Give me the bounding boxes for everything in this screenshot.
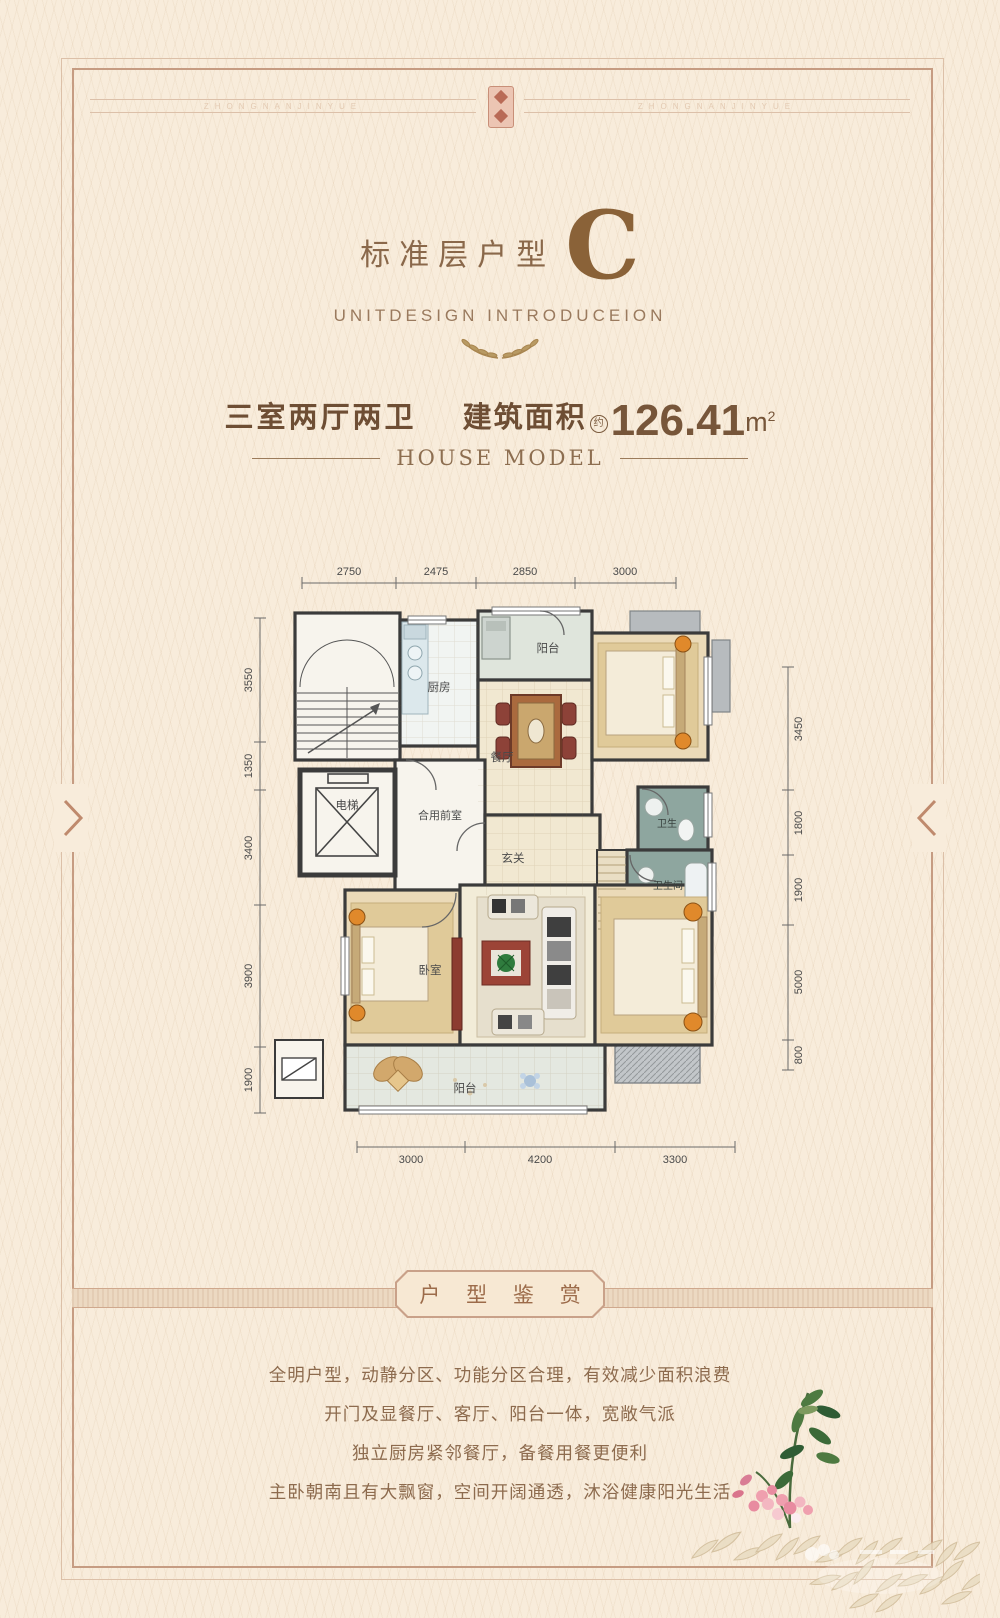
room-label-kitchen: 厨房 [428,681,451,694]
banner-plaque: 户 型 鉴 赏 [395,1270,605,1318]
approx-circle-icon: 约 [590,415,608,433]
room-label-dining: 餐厅 [491,750,514,764]
dim-left-1: 3550 [243,668,255,692]
dim-bottom-3: 3300 [663,1154,687,1166]
banner-title: 户 型 鉴 赏 [409,1279,591,1309]
dim-left-2: 1350 [243,754,255,778]
room-label-balcony-top: 阳台 [537,641,560,655]
dim-left-5: 1900 [243,1068,255,1092]
chevron-left-icon [914,797,942,839]
dim-bottom-2: 4200 [528,1154,552,1166]
specs-row: 三室两厅两卫 建筑面积 约 126.41 m2 [0,394,1000,441]
room-label-foyer: 玄关 [502,851,525,865]
medallion-icon [488,86,514,128]
page-title: 标准层户型 [360,230,555,288]
dim-right-5: 800 [793,1046,805,1064]
room-label-lobby: 合用前室 [418,808,462,822]
floor-plan: 厨房 阳台 餐厅 电梯 合用前室 玄关 卫生 卫生间 卧室 阳台 [230,545,810,1173]
blossoms [731,1472,813,1523]
unit-type-letter: C [565,204,640,288]
dim-left-4: 3900 [243,964,255,988]
poster: { "poster": { "band_text_left": "ZHONGNA… [0,0,1000,1618]
dim-right-3: 1900 [793,878,805,902]
room-label-elevator: 电梯 [336,799,359,812]
dim-right-1: 3450 [793,717,805,741]
laurel-icon [450,334,550,362]
band-text-right: ZHONGNANJINYUE [524,102,910,111]
dim-top-4: 3000 [613,566,637,578]
dim-left-3: 3400 [243,836,255,860]
room-label-bath-top: 卫生 [657,817,677,830]
tagline: HOUSE MODEL [396,446,603,470]
area-unit: m2 [745,407,775,441]
dim-top-1: 2750 [337,566,361,578]
area-group: 建筑面积 约 126.41 m2 [463,394,776,441]
flower-decoration [690,1368,980,1618]
dim-top-3: 2850 [513,566,537,578]
room-label-balcony-bottom: 阳台 [454,1081,477,1095]
band-text-left: ZHONGNANJINYUE [90,102,476,111]
flower-branch [731,1386,842,1528]
chevron-right-icon [58,797,86,839]
tagline-row: HOUSE MODEL [0,446,1000,470]
dim-right-2: 1800 [793,811,805,835]
area-label: 建筑面积 [463,394,587,441]
room-label-bath-bottom: 卫生间 [653,879,683,892]
dim-bottom-1: 3000 [399,1154,423,1166]
tagline-line-left [252,458,380,459]
room-label-bedroom: 卧室 [419,963,442,977]
header: 标准层户型 C [0,204,1000,288]
tagline-line-right [620,458,748,459]
dim-top-2: 2475 [424,566,448,578]
layout-label: 三室两厅两卫 [225,394,417,441]
dim-right-4: 5000 [793,970,805,994]
watermark [805,1544,942,1594]
area-value: 126.41 [611,401,746,441]
subtitle: UNITDESIGN INTRODUCEION [0,306,1000,326]
